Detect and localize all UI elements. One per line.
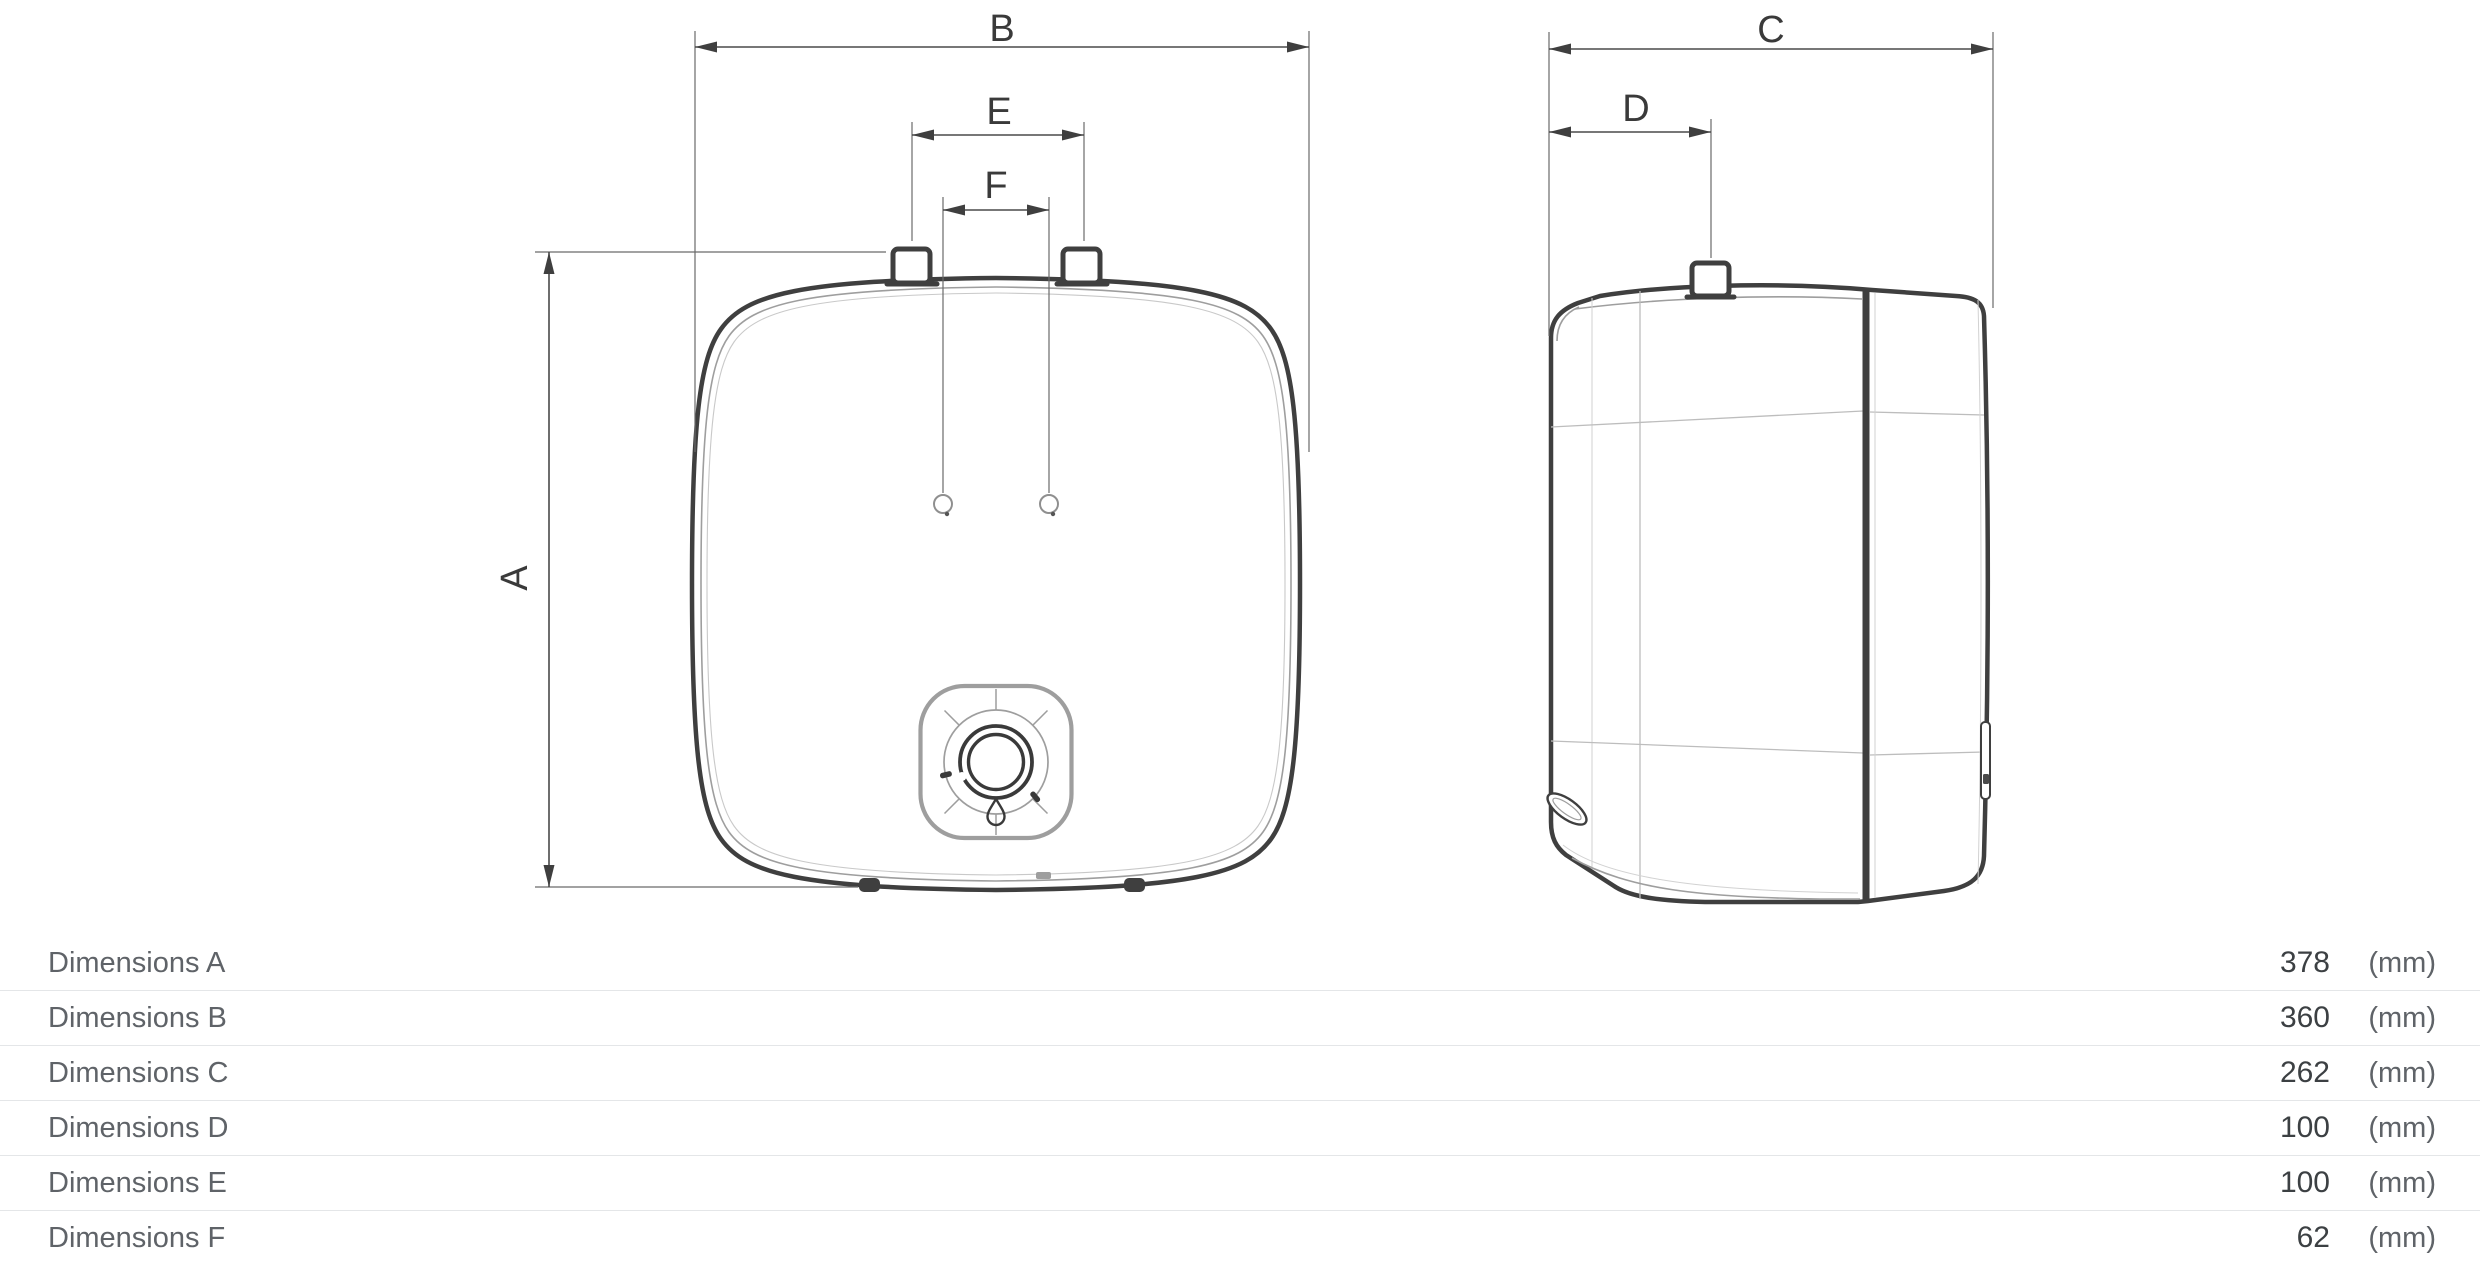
- side-stud: [1687, 263, 1734, 297]
- table-row-f: Dimensions F 62 (mm): [0, 1211, 2480, 1265]
- dim-label-f: F: [984, 165, 1007, 207]
- side-view: C D: [1543, 9, 1993, 902]
- dim-label-c: C: [1757, 9, 1784, 51]
- dimension-row-unit: (mm): [2336, 991, 2436, 1045]
- dimension-row-label: Dimensions F: [48, 1211, 225, 1265]
- front-stud-left: [887, 249, 937, 284]
- dimension-row-value: 378: [2280, 936, 2330, 990]
- dimension-row-label: Dimensions E: [48, 1156, 227, 1210]
- dimension-row-unit: (mm): [2336, 1156, 2436, 1210]
- dim-label-a: A: [494, 565, 536, 591]
- technical-drawing: B E F: [0, 0, 2480, 936]
- table-row-e: Dimensions E 100 (mm): [0, 1156, 2480, 1211]
- front-stud-right: [1057, 249, 1107, 284]
- dimension-row-label: Dimensions C: [48, 1046, 229, 1100]
- front-bottom-notch: [1036, 872, 1051, 879]
- front-foot-right: [1124, 878, 1145, 892]
- side-body-outline: [1551, 285, 1988, 902]
- dim-label-b: B: [989, 8, 1014, 50]
- front-view: B E F: [494, 8, 1309, 892]
- dimension-row-unit: (mm): [2336, 1101, 2436, 1155]
- dimension-row-unit: (mm): [2336, 1046, 2436, 1100]
- table-row-d: Dimensions D 100 (mm): [0, 1101, 2480, 1156]
- dimension-row-value: 100: [2280, 1101, 2330, 1155]
- dimension-row-unit: (mm): [2336, 1211, 2436, 1265]
- table-row-c: Dimensions C 262 (mm): [0, 1046, 2480, 1101]
- dimensions-page: B E F: [0, 0, 2480, 1280]
- dimension-row-unit: (mm): [2336, 936, 2436, 990]
- side-right-bracket: [1981, 722, 1990, 799]
- front-foot-left: [859, 878, 880, 892]
- dimension-row-label: Dimensions B: [48, 991, 227, 1045]
- dimension-d: D: [1549, 88, 1711, 258]
- dim-label-e: E: [986, 91, 1011, 133]
- knob-ring-gap: [958, 772, 967, 781]
- dimension-row-value: 262: [2280, 1046, 2330, 1100]
- dimensions-table: Dimensions A 378 (mm) Dimensions B 360 (…: [0, 936, 2480, 1265]
- dim-label-d: D: [1622, 88, 1649, 130]
- dimension-row-value: 62: [2297, 1211, 2330, 1265]
- dimension-row-value: 100: [2280, 1156, 2330, 1210]
- dimension-row-label: Dimensions A: [48, 936, 225, 990]
- table-row-b: Dimensions B 360 (mm): [0, 991, 2480, 1046]
- dimension-row-value: 360: [2280, 991, 2330, 1045]
- dimension-row-label: Dimensions D: [48, 1101, 229, 1155]
- table-row-a: Dimensions A 378 (mm): [0, 936, 2480, 991]
